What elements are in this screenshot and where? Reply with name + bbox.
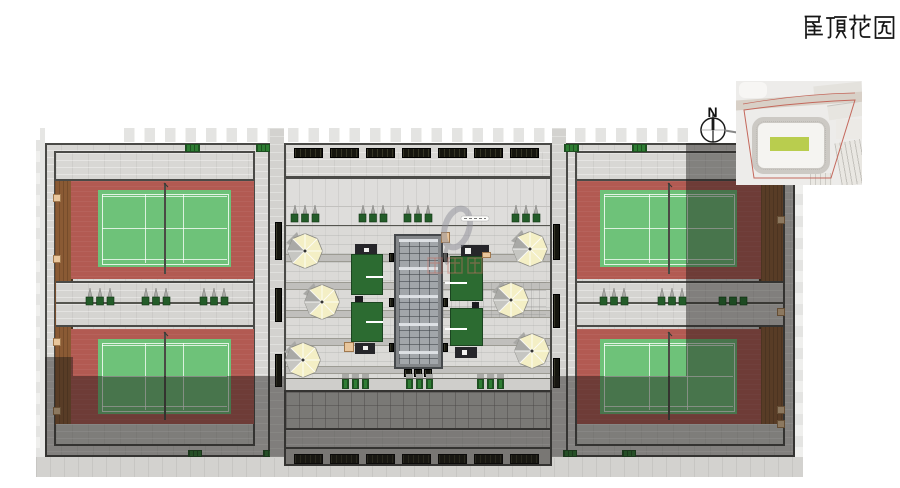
svg-text:N: N [707,104,717,120]
